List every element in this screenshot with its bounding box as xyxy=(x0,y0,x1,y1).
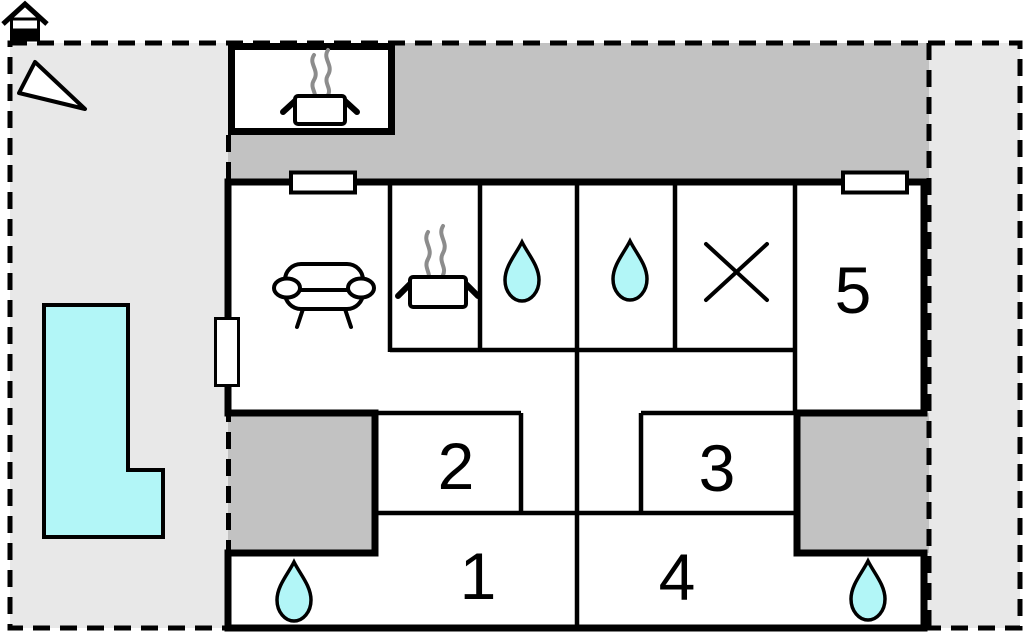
floor-plan-canvas: 1 2 3 4 5 xyxy=(0,0,1024,634)
room-4-label: 4 xyxy=(659,540,696,614)
house-icon-base xyxy=(10,29,40,42)
room-1-label: 1 xyxy=(460,539,497,613)
house-icon xyxy=(3,4,47,41)
room-3-label: 3 xyxy=(699,431,736,505)
terrace-left xyxy=(228,413,375,553)
terrace-right xyxy=(797,413,929,553)
room-2-label: 2 xyxy=(438,429,475,503)
sofa-armrest-left xyxy=(274,279,300,298)
floor-plan-drawing: 1 2 3 4 5 xyxy=(0,0,1024,634)
room-5-label: 5 xyxy=(835,253,872,327)
window-top-left xyxy=(291,173,355,193)
door-left xyxy=(216,319,239,386)
cooking-pot-icon xyxy=(295,96,345,124)
window-top-right xyxy=(843,173,907,193)
sofa-armrest-right xyxy=(348,279,374,298)
cooking-pot-icon xyxy=(410,277,466,307)
